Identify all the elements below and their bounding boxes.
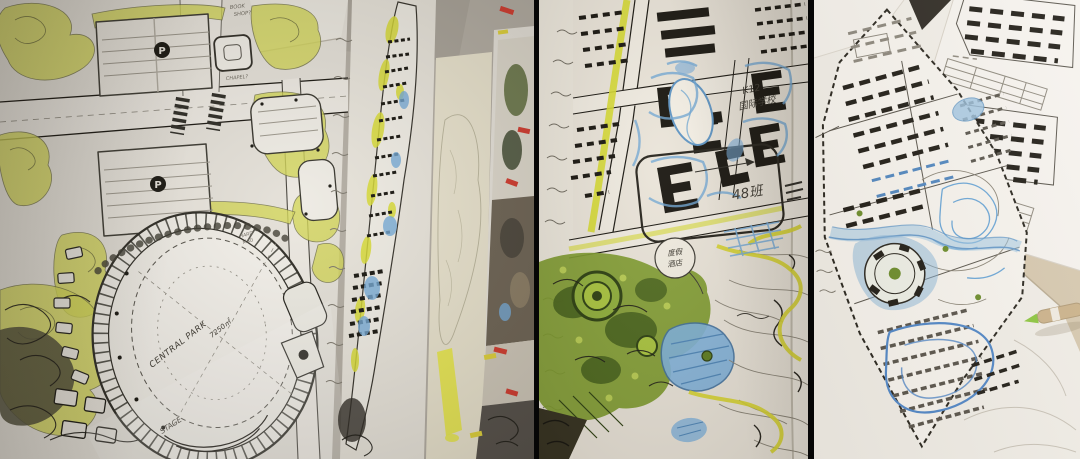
school-park-sketch-drawing: 度假 酒店 K12 国际学校 48班 [539,0,808,459]
parking-letter: P [154,180,161,191]
lake-island [702,351,712,361]
panel-middle-wall-sketch: 度假 酒店 K12 国际学校 48班 [539,0,808,459]
top-slab-buildings [657,7,716,57]
parking-court-upper: P [96,14,212,96]
parking-letter: P [158,46,165,57]
tracing-paper-sheet [426,52,492,459]
oval-plaza-sketch-drawing: P P CHAPEL? BOOK SHOP? [0,0,534,459]
photo-triptych: P P CHAPEL? BOOK SHOP? [0,0,1080,459]
ink-masterplan-drawing [814,0,1080,459]
panel-right-desk-sketch [814,0,1080,459]
panel-left-wall-sketch: P P CHAPEL? BOOK SHOP? [0,0,534,459]
